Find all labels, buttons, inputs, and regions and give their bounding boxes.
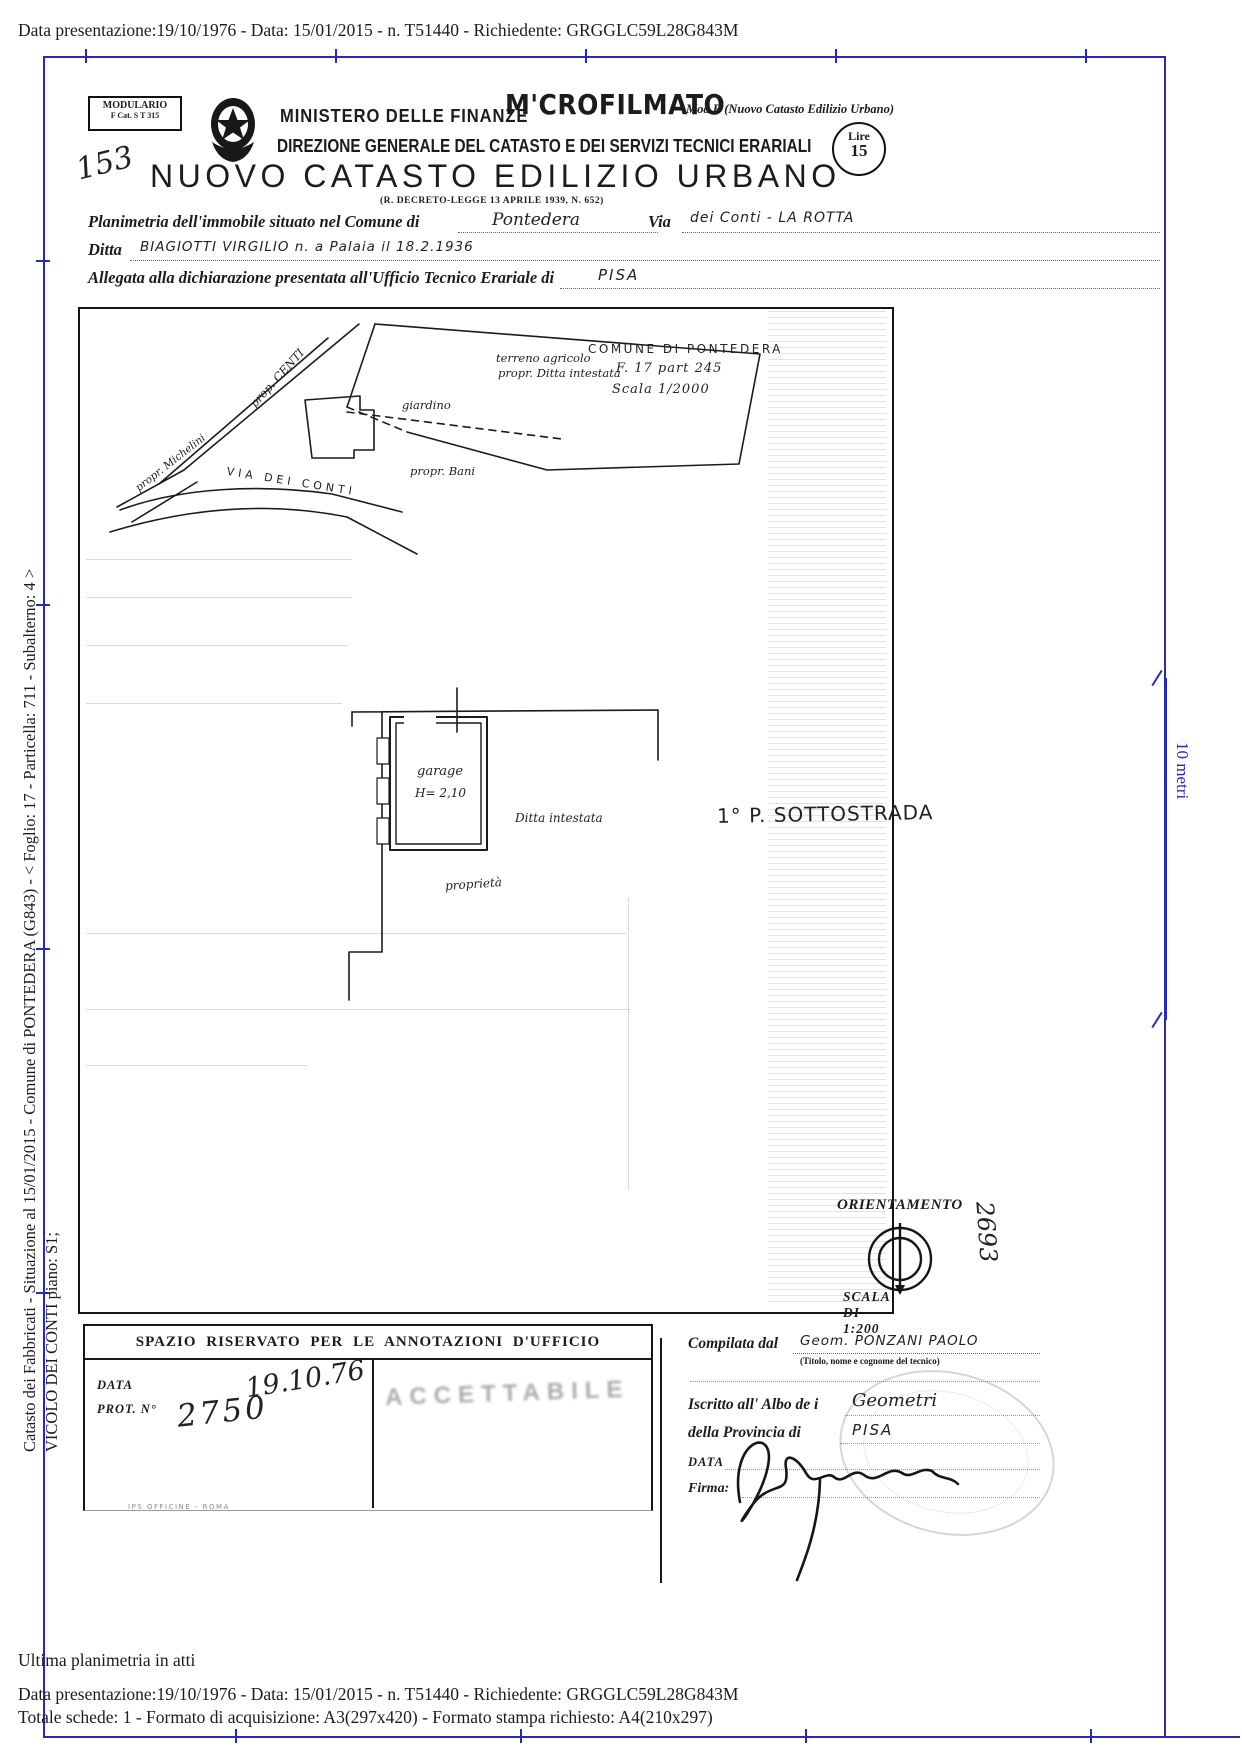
modulario-title: MODULARIO [90, 100, 180, 111]
annotations-box: SPAZIO RISERVATO PER LE ANNOTAZIONI D'UF… [83, 1324, 653, 1511]
dotted-line [682, 231, 1160, 233]
mod-b-label: Mod B (Nuovo Catasto Edilizio Urbano) [686, 102, 894, 117]
document-subtitle: (R. DECRETO-LEGGE 13 APRILE 1939, N. 652… [380, 196, 604, 206]
ruler-mark [1151, 1012, 1162, 1028]
frame-left-line [43, 56, 45, 1737]
site-scala-label: Scala 1/2000 [612, 382, 710, 397]
annotations-divider [372, 1360, 374, 1508]
site-comune-label: COMUNE DI PONTEDERA [588, 342, 783, 356]
piano-label: 1° P. SOTTOSTRADA [717, 800, 934, 828]
direzione-title: DIREZIONE GENERALE DEL CATASTO E DEI SER… [277, 135, 811, 157]
printer-mark: IPS OFFICINE - ROMA [128, 1503, 230, 1511]
garage-ditta-label: Ditta intestata [515, 811, 603, 825]
ufficio-value: PISA [598, 266, 639, 284]
comune-value: Pontedera [492, 210, 580, 230]
frame-tick [585, 49, 587, 63]
compilata-caption: (Titolo, nome e cognome del tecnico) [800, 1356, 940, 1366]
prot-value: 2750 [175, 1389, 269, 1434]
ministero-title: MINISTERO DELLE FINANZE [280, 106, 528, 127]
frame-tick [805, 1729, 807, 1743]
frame-tick [335, 49, 337, 63]
lire-amount: 15 [834, 142, 884, 159]
frame-tick [85, 49, 87, 63]
ruler-bar-10m [1164, 678, 1167, 1020]
planimetria-label: Planimetria dell'immobile situato nel Co… [88, 212, 419, 232]
compass-icon [862, 1217, 938, 1297]
site-bani-label: propr. Bani [410, 464, 475, 478]
compiled-section-border [660, 1338, 662, 1583]
ditta-label: Ditta [88, 240, 122, 260]
footer-ultima: Ultima planimetria in atti [18, 1650, 195, 1671]
dotted-line [560, 287, 1160, 289]
accettabile-stamp: ACCETTABILE [385, 1376, 630, 1413]
data-label: DATA [97, 1378, 133, 1393]
left-margin-line1: Catasto dei Fabbricati - Situazione al 1… [20, 569, 40, 1452]
annotations-header-bar: SPAZIO RISERVATO PER LE ANNOTAZIONI D'UF… [85, 1326, 651, 1360]
state-emblem-icon [204, 94, 262, 164]
ruler-mark [1151, 670, 1162, 686]
footer-line1: Data presentazione:19/10/1976 - Data: 15… [18, 1684, 738, 1705]
frame-tick [36, 260, 50, 262]
modulario-sub: F Cat. S T 315 [90, 111, 180, 120]
garage-height-label: H= 2,10 [415, 786, 466, 800]
ruler-label: 10 metri [1172, 742, 1192, 799]
footer-line2: Totale schede: 1 - Formato di acquisizio… [18, 1707, 713, 1728]
left-margin-line2: VICOLO DEI CONTI piano: S1; [42, 1232, 62, 1452]
ditta-value: BIAGIOTTI VIRGILIO n. a Palaia il 18.2.1… [140, 239, 474, 255]
orientamento-label: ORIENTAMENTO [837, 1197, 963, 1214]
site-terreno-label2: propr. Ditta intestata [498, 366, 621, 380]
dotted-line [130, 259, 1160, 261]
plan-canvas: prop. CENTI terreno agricolo propr. Ditt… [78, 307, 894, 1314]
modulario-box: MODULARIO F Cat. S T 315 [88, 96, 182, 131]
allegata-label: Allegata alla dichiarazione presentata a… [88, 268, 554, 288]
hand-number: 153 [73, 140, 137, 188]
dotted-line [793, 1352, 1040, 1354]
site-foglio-label: F. 17 part 245 [616, 361, 722, 376]
compilata-value: Geom. PONZANI PAOLO [800, 1333, 979, 1349]
frame-top-line [43, 56, 1166, 58]
dotted-line [458, 231, 658, 233]
frame-tick [1085, 49, 1087, 63]
document-title: NUOVO CATASTO EDILIZIO URBANO [150, 158, 841, 195]
scala-label: SCALA DI 1:200 [843, 1289, 892, 1337]
frame-tick [1090, 1729, 1092, 1743]
top-caption: Data presentazione:19/10/1976 - Data: 15… [18, 20, 738, 41]
site-terreno-label1: terreno agricolo [496, 351, 591, 365]
compilata-label: Compilata dal [688, 1335, 778, 1353]
frame-tick [235, 1729, 237, 1743]
garage-label: garage [417, 764, 463, 779]
frame-bottom-line [43, 1736, 1240, 1738]
via-label: Via [648, 212, 671, 232]
frame-tick [835, 49, 837, 63]
site-giardino-label: giardino [402, 398, 451, 412]
prot-label: PROT. N° [97, 1402, 157, 1417]
frame-tick [520, 1729, 522, 1743]
annotations-header-text: SPAZIO RISERVATO PER LE ANNOTAZIONI D'UF… [136, 1334, 600, 1350]
scanned-cadastral-document: { "colors": { "frame_blue": "#2a2ab0", "… [0, 0, 1242, 1756]
via-value: dei Conti - LA ROTTA [690, 210, 854, 226]
side-number: 2693 [970, 1201, 1002, 1264]
